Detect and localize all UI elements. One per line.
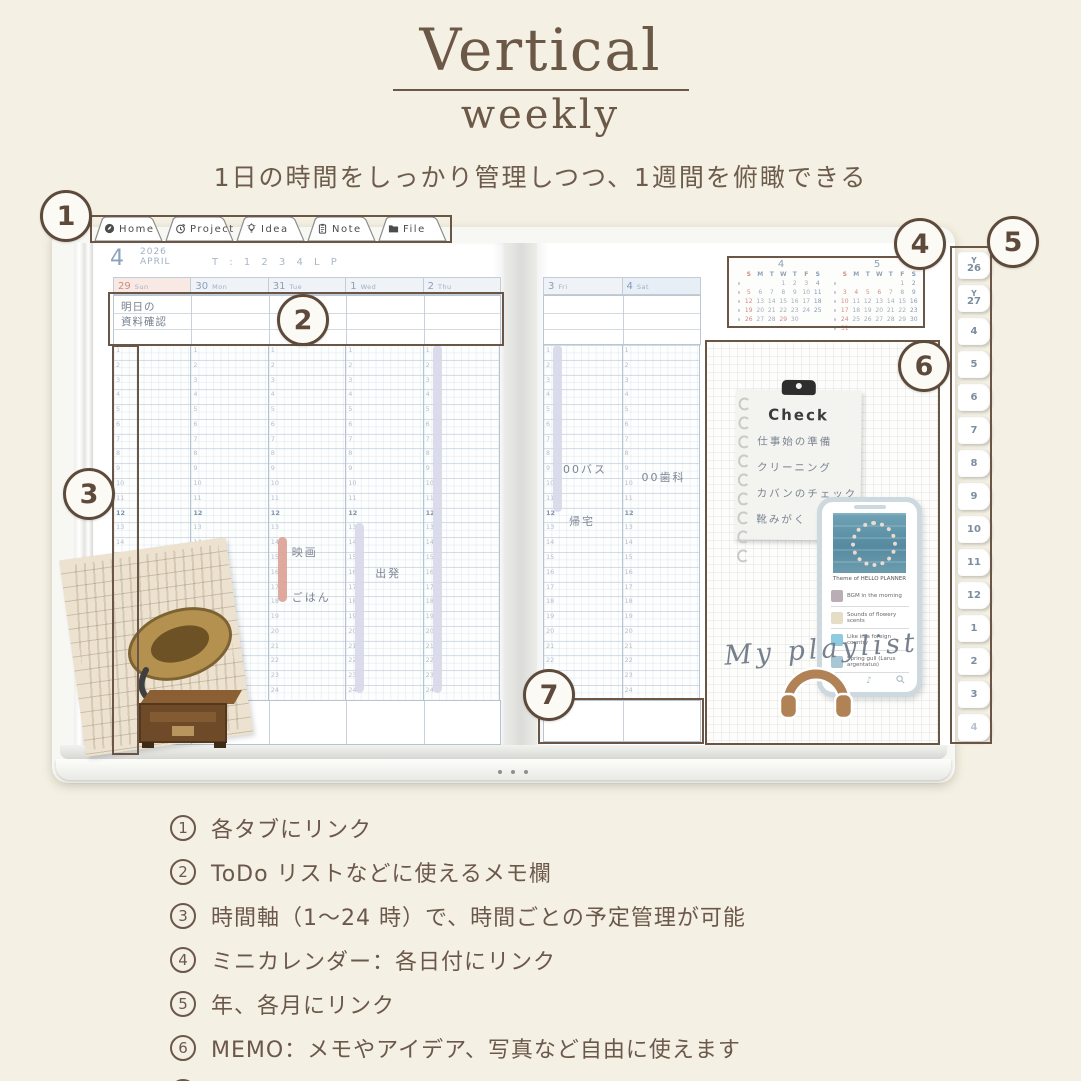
day-name: Fri (558, 283, 567, 291)
hour-cell: 18 (623, 596, 700, 611)
calendar-date[interactable]: 24 (801, 306, 813, 315)
search-icon (896, 675, 905, 687)
calendar-date[interactable]: 18 (812, 297, 824, 306)
folder-icon (388, 223, 399, 237)
hour-cell: 1 (623, 345, 700, 360)
hour-label: 2 (193, 361, 197, 369)
side-tab-month-4[interactable]: 4 (958, 714, 990, 741)
hour-label: 2 (426, 361, 430, 369)
tab-label-text: Home (119, 224, 155, 235)
hour-cell: 6 (346, 419, 422, 434)
hour-label: 12 (116, 509, 125, 517)
hour-label: 13 (116, 523, 124, 531)
calendar-date[interactable]: 8 (778, 288, 790, 297)
hour-cell: 3 (346, 375, 422, 390)
hour-label: 4 (348, 390, 352, 398)
day-header-tue[interactable]: 31Tue (268, 277, 346, 295)
hour-cell: 4 (623, 389, 700, 404)
calendar-date[interactable]: 12 (862, 297, 874, 306)
week-bullet[interactable] (831, 306, 839, 315)
side-tab-label: 2 (971, 657, 978, 667)
hour-label: 2 (271, 361, 275, 369)
day-number: 29 (118, 281, 131, 292)
hour-label: 3 (271, 376, 275, 384)
calendar-date (851, 324, 863, 333)
calendar-date[interactable]: 22 (778, 306, 790, 315)
calendar-date[interactable]: 6 (755, 288, 767, 297)
feature-row: 6MEMO：メモやアイデア、写真など自由に使えます (170, 1032, 746, 1064)
hour-cell: 23 (623, 670, 700, 685)
calendar-date[interactable]: 4 (812, 279, 824, 288)
side-tab-y-26[interactable]: Y26 (958, 252, 990, 279)
calendar-date[interactable]: 19 (743, 306, 755, 315)
hour-cell: 16 (544, 567, 622, 582)
hour-cell: 14 (623, 537, 700, 552)
side-tab-month-1[interactable]: 1 (958, 615, 990, 642)
hour-cell: 9 (114, 463, 190, 478)
hour-label: 4 (625, 390, 629, 398)
calendar-date[interactable]: 14 (885, 297, 897, 306)
top-tab-bar[interactable]: HomeProjectIdeaNoteFile (93, 216, 455, 242)
hour-cell: 12 (269, 508, 345, 523)
hour-cell: 10 (191, 478, 267, 493)
side-tab-month-8[interactable]: 8 (958, 450, 990, 477)
hour-label: 8 (625, 449, 629, 457)
hour-cell: 10 (269, 478, 345, 493)
calendar-date[interactable]: 27 (755, 315, 767, 324)
hour-cell: 24 (269, 685, 345, 700)
side-tab-label: 11 (967, 558, 981, 568)
hour-label: 1 (271, 346, 275, 354)
hour-cell: 9 (269, 463, 345, 478)
side-tab-month-7[interactable]: 7 (958, 417, 990, 444)
hour-label: 5 (546, 405, 550, 413)
weekday-label: S (908, 270, 920, 279)
hour-label: 22 (546, 656, 554, 664)
home-icon (104, 223, 115, 237)
hour-cell: 6 (191, 419, 267, 434)
hour-cell: 21 (269, 641, 345, 656)
hour-cell: 3 (114, 375, 190, 390)
hour-label: 11 (348, 494, 356, 502)
day-name: Mon (212, 283, 227, 291)
day-header-sun[interactable]: 29Sun (113, 277, 191, 295)
time-column-sat[interactable]: 123456789101112131415161718192021222324 (622, 345, 701, 700)
calendar-date (897, 324, 909, 333)
hour-label: 10 (193, 479, 201, 487)
hour-label: 5 (271, 405, 275, 413)
hour-label: 9 (193, 464, 197, 472)
hour-cell: 1 (114, 345, 190, 360)
week-bullet[interactable] (831, 315, 839, 324)
week-bullet[interactable] (735, 306, 743, 315)
hour-label: 11 (271, 494, 279, 502)
hour-label: 11 (116, 494, 124, 502)
calendar-date (743, 279, 755, 288)
hour-cell: 22 (269, 655, 345, 670)
hour-cell: 17 (623, 582, 700, 597)
side-tab-month-5[interactable]: 5 (958, 351, 990, 378)
calendar-date[interactable]: 3 (839, 288, 851, 297)
hour-cell: 8 (269, 448, 345, 463)
calendar-date[interactable]: 15 (778, 297, 790, 306)
bulb-icon (246, 223, 257, 237)
calendar-date[interactable]: 16 (789, 297, 801, 306)
hour-label: 3 (116, 376, 120, 384)
feature-number: 5 (170, 991, 196, 1017)
calendar-date[interactable]: 2 (789, 279, 801, 288)
hour-label: 18 (546, 597, 554, 605)
feature-number: 1 (170, 815, 196, 841)
hour-label: 5 (116, 405, 120, 413)
month-name-label: APRIL (140, 257, 171, 267)
calendar-date[interactable]: 23 (789, 306, 801, 315)
daily-memo-separator (346, 701, 347, 744)
calendar-date[interactable]: 24 (839, 315, 851, 324)
calendar-date[interactable]: 28 (766, 315, 778, 324)
calendar-date[interactable]: 27 (874, 315, 886, 324)
calendar-date (885, 324, 897, 333)
hour-cell: 22 (544, 655, 622, 670)
hour-label: 14 (625, 538, 633, 546)
calendar-date[interactable]: 16 (908, 297, 920, 306)
hour-cell: 6 (623, 419, 700, 434)
hour-label: 6 (116, 420, 120, 428)
calendar-date[interactable]: 29 (897, 315, 909, 324)
hour-cell: 21 (544, 641, 622, 656)
hour-cell: 7 (191, 434, 267, 449)
feature-number: 6 (170, 1035, 196, 1061)
template-row[interactable]: T : 1 2 3 4 L P (212, 257, 341, 268)
mini-calendar-box[interactable]: 4SMTWTFS12345678910111213141516171819202… (727, 256, 925, 328)
hour-label: 4 (193, 390, 197, 398)
hour-cell: 13 (114, 522, 190, 537)
hour-label: 14 (546, 538, 554, 546)
hour-label: 4 (116, 390, 120, 398)
side-tab-month-4[interactable]: 4 (958, 318, 990, 345)
hour-label: 12 (348, 509, 357, 517)
calendar-date[interactable]: 5 (862, 288, 874, 297)
gramophone-sticker (88, 592, 248, 756)
hour-label: 10 (625, 479, 633, 487)
hour-cell: 5 (346, 404, 422, 419)
hour-cell: 4 (191, 389, 267, 404)
week-bullet[interactable] (831, 324, 839, 333)
callout-5: 5 (987, 216, 1039, 268)
hour-cell: 2 (269, 360, 345, 375)
hour-label: 15 (546, 553, 554, 561)
hour-label: 5 (426, 405, 430, 413)
calendar-date[interactable]: 10 (839, 297, 851, 306)
calendar-date (801, 315, 813, 324)
hour-cell: 24 (623, 685, 700, 700)
hour-cell: 20 (544, 626, 622, 641)
hour-label: 22 (271, 656, 279, 664)
calendar-date[interactable]: 20 (874, 306, 886, 315)
calendar-date[interactable]: 3 (801, 279, 813, 288)
day-number: 31 (273, 281, 286, 292)
hour-cell: 3 (191, 375, 267, 390)
calendar-date[interactable]: 25 (812, 306, 824, 315)
hour-label: 21 (546, 642, 554, 650)
hour-label: 6 (426, 420, 430, 428)
calendar-date (874, 279, 886, 288)
time-column-tue[interactable]: 123456789101112131415161718192021222324 (268, 345, 345, 700)
hour-cell: 15 (623, 552, 700, 567)
side-tab-month-9[interactable]: 9 (958, 483, 990, 510)
tab-project[interactable]: Project (175, 220, 235, 239)
tab-note[interactable]: Note (317, 220, 362, 239)
calendar-date[interactable]: 14 (766, 297, 778, 306)
hour-cell: 19 (623, 611, 700, 626)
calendar-date[interactable]: 10 (801, 288, 813, 297)
mini-calendar-5[interactable]: 5SMTWTFS12345678910111213141516171819202… (831, 259, 923, 333)
hour-label: 6 (348, 420, 352, 428)
tab-label-text: Idea (261, 224, 289, 235)
hour-label: 13 (546, 523, 554, 531)
tab-label-text: Note (332, 224, 362, 235)
calendar-date (766, 279, 778, 288)
side-tab-month-11[interactable]: 11 (958, 549, 990, 576)
hour-label: 24 (625, 686, 633, 694)
hour-cell: 8 (346, 448, 422, 463)
day-number: 4 (627, 281, 633, 292)
side-tab-label: 1 (971, 624, 978, 634)
hour-label: 9 (546, 464, 550, 472)
daily-memo-separator (623, 701, 624, 741)
calendar-date[interactable]: 2 (908, 279, 920, 288)
calendar-date[interactable]: 1 (897, 279, 909, 288)
callout-2: 2 (277, 294, 329, 346)
tab-file[interactable]: File (388, 220, 426, 239)
calendar-date[interactable]: 25 (851, 315, 863, 324)
hour-cell: 2 (346, 360, 422, 375)
hour-cell: 9 (191, 463, 267, 478)
week-bullet[interactable] (735, 297, 743, 306)
hour-label: 5 (348, 405, 352, 413)
calendar-date (862, 324, 874, 333)
calendar-date[interactable]: 9 (908, 288, 920, 297)
hour-label: 10 (348, 479, 356, 487)
tagline: 1日の時間をしっかり管理しつつ、1週間を俯瞰できる (0, 158, 1081, 194)
side-tab-label: 7 (971, 426, 978, 436)
track-title: Sounds of flowery scents (847, 612, 909, 624)
calendar-date[interactable]: 21 (885, 306, 897, 315)
week-bullet[interactable] (735, 279, 743, 288)
day-number: 1 (350, 281, 356, 292)
feature-text: 各タブにリンク (211, 812, 372, 844)
side-tab-bar[interactable]: Y26Y274567891011121234 (958, 252, 990, 747)
hour-label: 9 (426, 464, 430, 472)
hour-label: 19 (271, 612, 279, 620)
side-tab-month-12[interactable]: 12 (958, 582, 990, 609)
calendar-date (862, 279, 874, 288)
mini-calendar-month[interactable]: 4 (735, 259, 827, 270)
calendar-date[interactable]: 13 (874, 297, 886, 306)
day-header-thu[interactable]: 2Thu (423, 277, 501, 295)
hour-cell: 18 (544, 596, 622, 611)
event-label: 00バス (563, 461, 607, 477)
hour-cell: 7 (114, 434, 190, 449)
hour-label: 6 (271, 420, 275, 428)
week-bullet[interactable] (831, 279, 839, 288)
hour-cell: 23 (269, 670, 345, 685)
calendar-date[interactable]: 19 (862, 306, 874, 315)
event-highlight-bar (278, 537, 287, 602)
calendar-date[interactable]: 26 (743, 315, 755, 324)
weekday-label: S (839, 270, 851, 279)
calendar-date[interactable]: 17 (839, 306, 851, 315)
calendar-date[interactable]: 13 (755, 297, 767, 306)
hour-cell: 13 (269, 522, 345, 537)
calendar-date[interactable]: 21 (766, 306, 778, 315)
hour-label: 1 (116, 346, 120, 354)
hour-label: 13 (625, 523, 633, 531)
tab-home[interactable]: Home (104, 220, 155, 239)
clipboard-clip-icon (782, 380, 816, 395)
tab-label-text: Project (190, 224, 235, 235)
feature-number: 3 (170, 903, 196, 929)
hour-cell: 17 (544, 582, 622, 597)
day-header-sat[interactable]: 4Sat (622, 277, 702, 295)
clipboard-icon (317, 223, 328, 237)
hour-cell: 2 (623, 360, 700, 375)
hour-label: 4 (546, 390, 550, 398)
tab-idea[interactable]: Idea (246, 220, 289, 239)
calendar-date[interactable]: 5 (743, 288, 755, 297)
mini-calendar-4[interactable]: 4SMTWTFS12345678910111213141516171819202… (735, 259, 827, 324)
feature-row: 3時間軸（1〜24 時）で、時間ごとの予定管理が可能 (170, 900, 746, 932)
calendar-date[interactable]: 11 (851, 297, 863, 306)
hour-label: 7 (116, 435, 120, 443)
hour-cell: 1 (346, 345, 422, 360)
hour-cell: 12 (191, 508, 267, 523)
feature-text: 年、各月にリンク (211, 988, 395, 1020)
week-bullet[interactable] (735, 288, 743, 297)
hour-label: 20 (625, 627, 633, 635)
calendar-date[interactable]: 4 (851, 288, 863, 297)
weekday-label: S (812, 270, 824, 279)
year-label: 2026 (140, 247, 171, 257)
hour-label: 21 (271, 642, 279, 650)
hour-cell: 11 (346, 493, 422, 508)
hour-label: 6 (193, 420, 197, 428)
calendar-date[interactable]: 30 (908, 315, 920, 324)
week-bullet[interactable] (735, 315, 743, 324)
hour-label: 3 (546, 376, 550, 384)
hour-label: 2 (116, 361, 120, 369)
cal-corner (831, 270, 839, 279)
side-tab-month-2[interactable]: 2 (958, 648, 990, 675)
calendar-date[interactable]: 9 (789, 288, 801, 297)
day-number: 3 (548, 281, 554, 292)
day-header-fri[interactable]: 3Fri (543, 277, 623, 295)
event-highlight-bar (355, 523, 364, 693)
calendar-date[interactable]: 31 (839, 324, 851, 333)
calendar-date[interactable]: 23 (908, 306, 920, 315)
weekday-label: W (778, 270, 790, 279)
calendar-date[interactable]: 8 (897, 288, 909, 297)
hour-cell: 20 (269, 626, 345, 641)
mini-calendar-grid: SMTWTFS123456789101112131415161718192021… (831, 270, 923, 333)
day-name: Sun (135, 283, 149, 291)
hour-cell: 1 (191, 345, 267, 360)
calendar-date[interactable]: 7 (766, 288, 778, 297)
feature-text: ミニカレンダー：各日付にリンク (211, 944, 556, 976)
day-header-wed[interactable]: 1Wed (345, 277, 423, 295)
hour-cell: 7 (623, 434, 700, 449)
side-tab-label: 5 (971, 360, 978, 370)
hour-label: 20 (546, 627, 554, 635)
hour-cell: 13 (191, 522, 267, 537)
weekday-label: W (874, 270, 886, 279)
hour-label: 1 (625, 346, 629, 354)
calendar-date[interactable]: 28 (885, 315, 897, 324)
calendar-date[interactable]: 1 (778, 279, 790, 288)
calendar-date[interactable]: 30 (789, 315, 801, 324)
hour-label: 2 (348, 361, 352, 369)
calendar-date[interactable]: 29 (778, 315, 790, 324)
hour-label: 6 (625, 420, 629, 428)
hour-label: 9 (116, 464, 120, 472)
side-tab-month-6[interactable]: 6 (958, 384, 990, 411)
calendar-date[interactable]: 11 (812, 288, 824, 297)
calendar-date[interactable]: 26 (862, 315, 874, 324)
day-header-mon[interactable]: 30Mon (190, 277, 268, 295)
memo-column-separator (269, 296, 270, 344)
hour-cell: 14 (544, 537, 622, 552)
hour-cell: 4 (269, 389, 345, 404)
calendar-date[interactable]: 12 (743, 297, 755, 306)
hour-label: 3 (625, 376, 629, 384)
side-tab-month-10[interactable]: 10 (958, 516, 990, 543)
side-tab-label: 3 (971, 690, 978, 700)
hour-label: 4 (271, 390, 275, 398)
hour-label: 12 (271, 509, 280, 517)
calendar-date[interactable]: 18 (851, 306, 863, 315)
track-thumbnail (831, 612, 843, 624)
hour-label: 23 (271, 671, 279, 679)
hour-cell: 6 (269, 419, 345, 434)
calendar-date[interactable]: 22 (897, 306, 909, 315)
month-number[interactable]: 4 (110, 246, 124, 271)
hour-label: 13 (193, 523, 201, 531)
calendar-date[interactable]: 20 (755, 306, 767, 315)
hour-cell: 12 (114, 508, 190, 523)
week-bullet[interactable] (831, 288, 839, 297)
todo-memo-band[interactable] (543, 295, 701, 345)
hour-cell: 11 (114, 493, 190, 508)
hour-label: 3 (426, 376, 430, 384)
callout-3: 3 (63, 468, 115, 520)
week-bullet[interactable] (831, 297, 839, 306)
calendar-date[interactable]: 7 (885, 288, 897, 297)
calendar-date (908, 324, 920, 333)
hour-label: 1 (546, 346, 550, 354)
calendar-date[interactable]: 6 (874, 288, 886, 297)
side-tab-month-3[interactable]: 3 (958, 681, 990, 708)
hour-label: 3 (193, 376, 197, 384)
hour-label: 2 (546, 361, 550, 369)
side-tab-y-27[interactable]: Y27 (958, 285, 990, 312)
hour-label: 7 (348, 435, 352, 443)
calendar-date[interactable]: 17 (801, 297, 813, 306)
memo-column-separator (191, 296, 192, 344)
feature-text: 時間軸（1〜24 時）で、時間ごとの予定管理が可能 (211, 900, 746, 932)
feature-number: 4 (170, 947, 196, 973)
calendar-date[interactable]: 15 (897, 297, 909, 306)
hour-cell: 9 (346, 463, 422, 478)
